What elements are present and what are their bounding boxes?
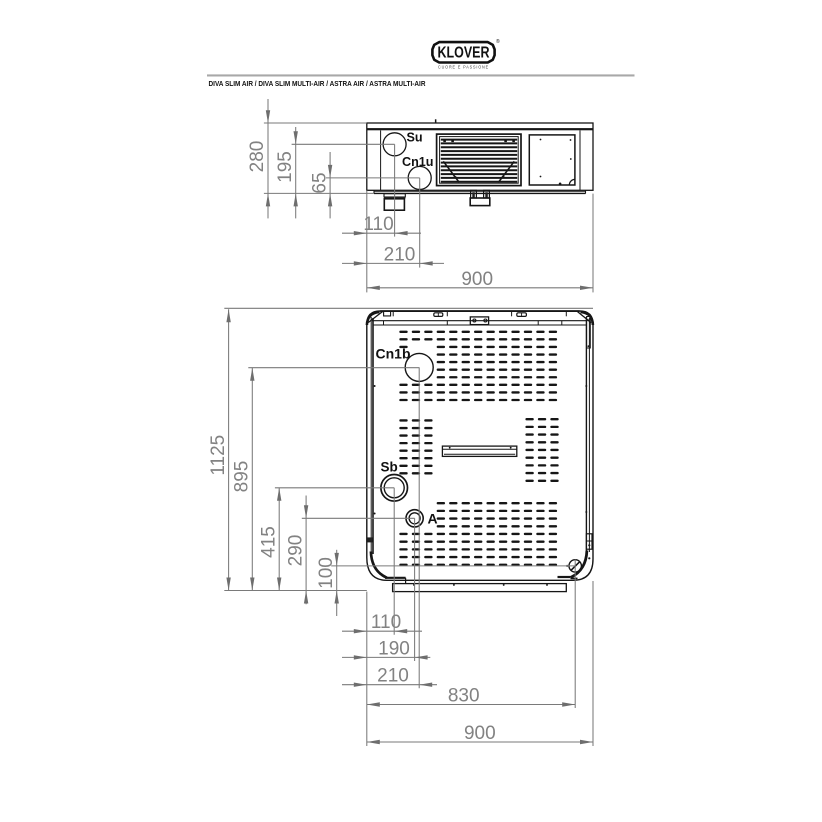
svg-text:195: 195 [275, 151, 296, 183]
svg-text:415: 415 [259, 526, 280, 558]
svg-text:110: 110 [371, 612, 401, 633]
svg-text:210: 210 [377, 666, 409, 687]
svg-text:A: A [428, 511, 438, 527]
svg-text:1125: 1125 [208, 435, 229, 476]
svg-text:830: 830 [448, 686, 480, 707]
svg-text:900: 900 [464, 723, 496, 744]
svg-text:65: 65 [309, 172, 330, 193]
svg-text:100: 100 [316, 557, 337, 589]
svg-text:290: 290 [285, 535, 306, 567]
svg-text:DIVA SLIM AIR / DIVA SLIM MUL: DIVA SLIM AIR / DIVA SLIM MULTI-AIR / AS… [209, 79, 427, 88]
svg-text:®: ® [496, 38, 500, 45]
svg-text:190: 190 [378, 638, 410, 659]
svg-text:895: 895 [232, 461, 253, 493]
svg-text:KLOVER: KLOVER [438, 45, 490, 62]
svg-text:280: 280 [247, 141, 268, 173]
svg-text:Sb: Sb [381, 460, 398, 475]
svg-text:Cn1u: Cn1u [402, 155, 433, 169]
svg-text:210: 210 [384, 244, 416, 265]
svg-text:CUORE E PASSIONE: CUORE E PASSIONE [438, 64, 489, 69]
svg-text:110: 110 [363, 214, 393, 235]
svg-text:900: 900 [461, 269, 493, 290]
svg-text:Cn1b: Cn1b [376, 346, 411, 362]
svg-text:Su: Su [407, 131, 423, 145]
